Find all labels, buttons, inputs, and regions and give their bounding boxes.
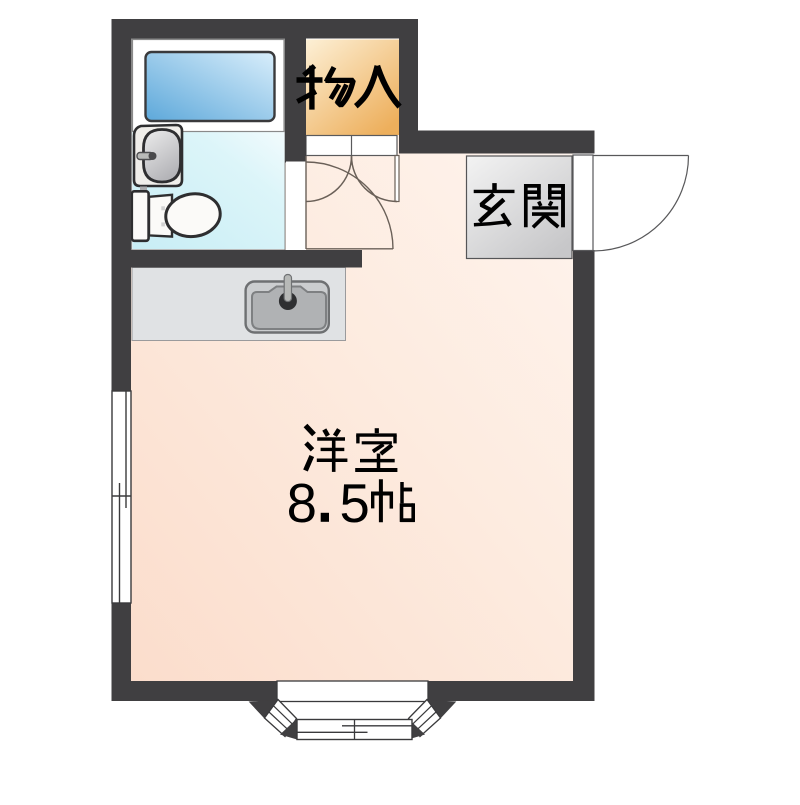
svg-text:8: 8 <box>287 473 317 534</box>
svg-text:5: 5 <box>340 473 370 534</box>
